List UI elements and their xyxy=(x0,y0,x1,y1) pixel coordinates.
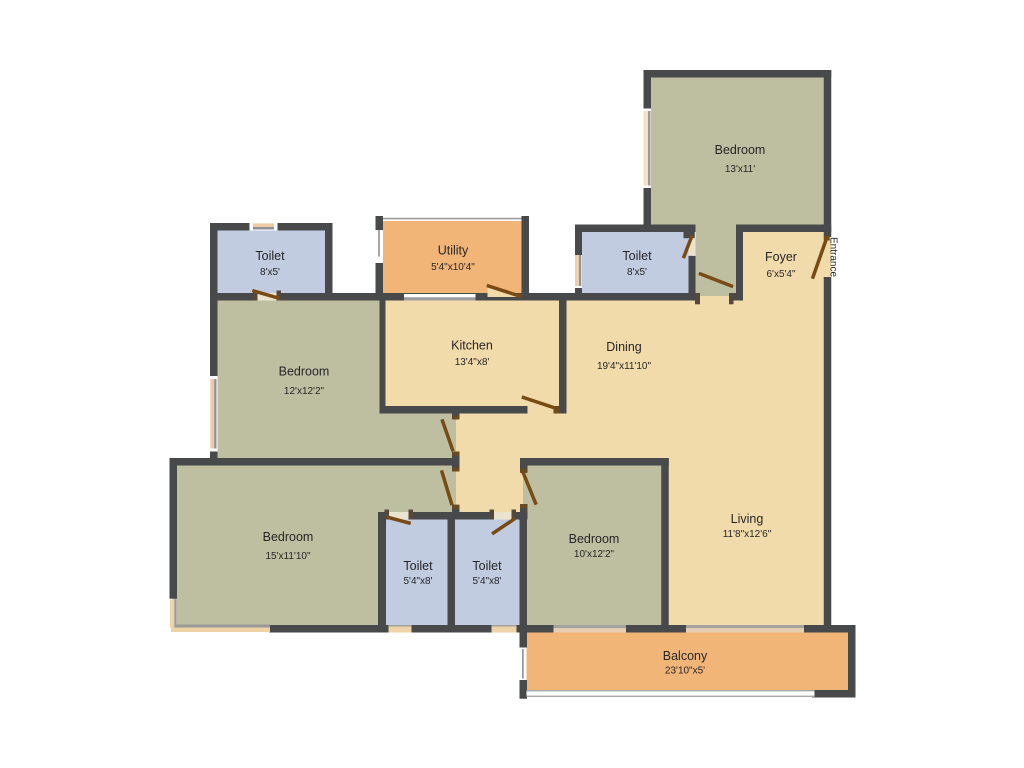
svg-text:12'x12'2": 12'x12'2" xyxy=(284,386,325,397)
svg-text:Toilet: Toilet xyxy=(472,559,502,573)
svg-text:Bedroom: Bedroom xyxy=(715,143,766,157)
svg-text:Bedroom: Bedroom xyxy=(569,532,620,546)
svg-text:Entrance: Entrance xyxy=(828,237,839,277)
svg-text:5'4"x8': 5'4"x8' xyxy=(403,576,432,587)
svg-text:Foyer: Foyer xyxy=(765,250,797,264)
svg-text:15'x11'10": 15'x11'10" xyxy=(266,551,311,562)
svg-text:8'x5': 8'x5' xyxy=(627,267,647,278)
svg-text:Bedroom: Bedroom xyxy=(279,365,330,379)
svg-text:Balcony: Balcony xyxy=(663,649,708,663)
svg-text:8'x5': 8'x5' xyxy=(260,267,280,278)
svg-text:Living: Living xyxy=(731,512,764,526)
svg-text:5'4"x10'4": 5'4"x10'4" xyxy=(431,262,475,273)
svg-text:Dining: Dining xyxy=(606,340,641,354)
svg-text:Toilet: Toilet xyxy=(622,249,652,263)
svg-text:Utility: Utility xyxy=(438,244,469,258)
svg-text:19'4"x11'10": 19'4"x11'10" xyxy=(597,361,652,372)
svg-text:6'x5'4": 6'x5'4" xyxy=(766,269,796,280)
svg-text:13'x11': 13'x11' xyxy=(725,164,755,175)
svg-text:5'4"x8': 5'4"x8' xyxy=(472,576,501,587)
svg-text:Toilet: Toilet xyxy=(255,249,285,263)
svg-text:23'10"x5': 23'10"x5' xyxy=(665,666,705,677)
svg-text:Kitchen: Kitchen xyxy=(451,339,493,353)
svg-text:Toilet: Toilet xyxy=(403,559,433,573)
svg-text:10'x12'2": 10'x12'2" xyxy=(574,549,615,560)
svg-text:Bedroom: Bedroom xyxy=(263,530,314,544)
svg-text:13'4"x8': 13'4"x8' xyxy=(455,357,490,368)
svg-text:11'8"x12'6": 11'8"x12'6" xyxy=(723,529,772,540)
